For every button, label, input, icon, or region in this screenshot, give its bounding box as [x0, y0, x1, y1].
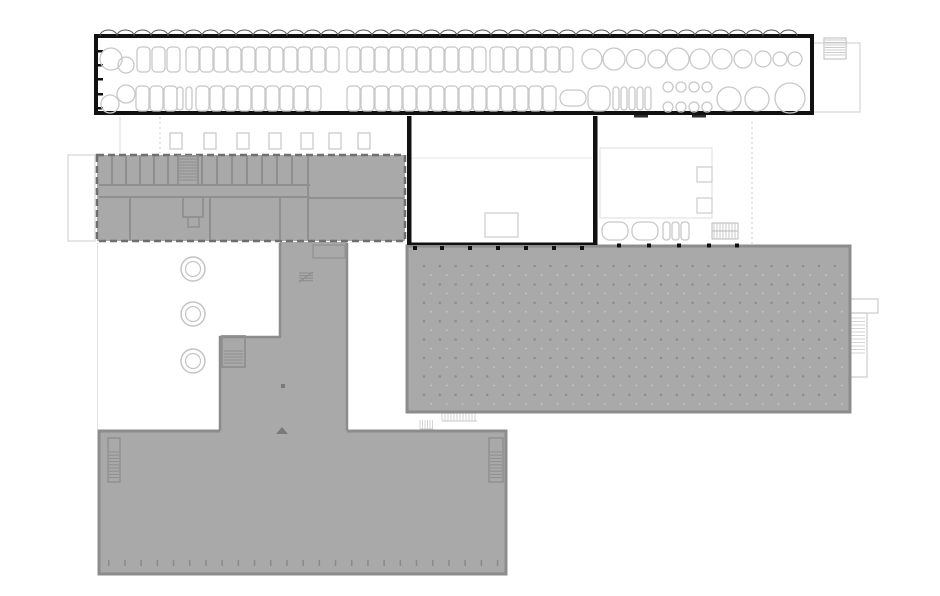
south-hall	[99, 431, 506, 574]
plan-canvas	[0, 0, 940, 596]
north-office-building	[97, 155, 405, 241]
floor-plan-svg	[0, 0, 940, 596]
east-production-hall	[407, 246, 850, 412]
north-parking-strip	[96, 30, 812, 113]
